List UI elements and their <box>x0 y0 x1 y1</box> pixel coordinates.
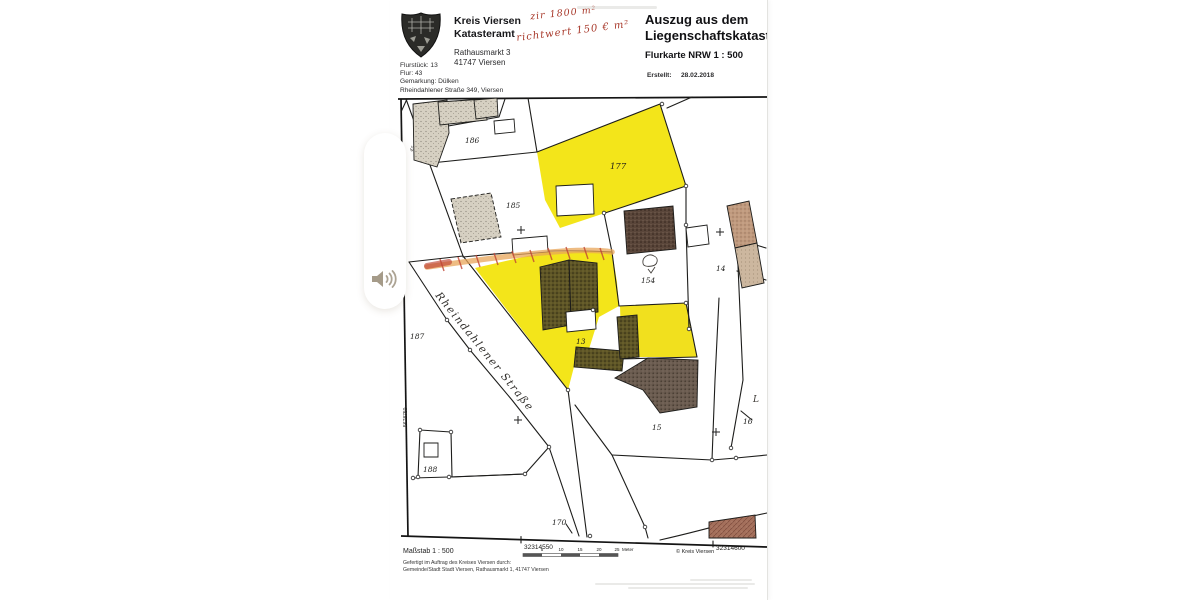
parcel-label-15: 15 <box>652 423 662 432</box>
handwritten-note-value: richtwert 150 € m² <box>516 19 630 44</box>
credit-line-2: Gemeinde/Stadt Stadt Viersen, Rathausmar… <box>403 567 549 573</box>
parcel-label-13: 13 <box>576 337 586 346</box>
document-subtitle: Flurkarte NRW 1 : 500 <box>645 50 743 61</box>
parcel-label-170: 170 <box>552 518 567 527</box>
cadastral-map: 186 185 177 154 14 187 13 15 16 188 170 … <box>390 95 767 600</box>
scale-text: Maßstab 1 : 500 <box>403 548 454 555</box>
parcel-label-16: 16 <box>743 417 753 426</box>
office-name: Kreis Viersen Katasteramt <box>454 15 521 41</box>
svg-text:15: 15 <box>577 547 583 552</box>
handwritten-scribble <box>643 255 657 273</box>
credit-line-1: Gefertigt im Auftrag des Kreises Viersen… <box>403 560 511 566</box>
parcel-label-177: 177 <box>610 162 627 172</box>
copyright-text: © Kreis Viersen <box>676 549 714 555</box>
scan-smudge <box>577 6 657 9</box>
parcel-label-188: 188 <box>423 465 438 474</box>
grid-label-north-bottom: 5678750 <box>403 407 409 427</box>
svg-text:10: 10 <box>558 547 564 552</box>
kreis-viersen-coat-of-arms-icon <box>400 12 442 59</box>
parcel-label-187: 187 <box>410 332 425 341</box>
svg-text:20: 20 <box>596 547 602 552</box>
speaker-icon <box>371 267 399 291</box>
created-label: Erstellt: <box>647 72 672 79</box>
scale-bar-unit: Meter <box>622 547 634 552</box>
scanned-document: Kreis Viersen Katasteramt Rathausmarkt 3… <box>390 0 768 600</box>
hand-mark-L: L <box>752 395 759 405</box>
page: Kreis Viersen Katasteramt Rathausmarkt 3… <box>0 0 1200 600</box>
parcel-label-154: 154 <box>641 276 656 285</box>
audio-button[interactable] <box>364 133 406 309</box>
parcel-label-14: 14 <box>716 264 726 273</box>
document-title: Auszug aus dem Liegenschaftskataster <box>645 12 768 44</box>
parcel-label-185: 185 <box>506 201 521 210</box>
grid-label-east-right: 32314600 <box>716 545 745 552</box>
parcel-label-186: 186 <box>465 136 480 145</box>
created-date: 28.02.2018 <box>681 72 714 79</box>
grid-label-east-left: 32314550 <box>524 544 553 551</box>
parcel-info-block: Flurstück: 13 Flur: 43 Gemarkung: Dülken… <box>400 62 503 95</box>
svg-text:25: 25 <box>614 547 620 552</box>
